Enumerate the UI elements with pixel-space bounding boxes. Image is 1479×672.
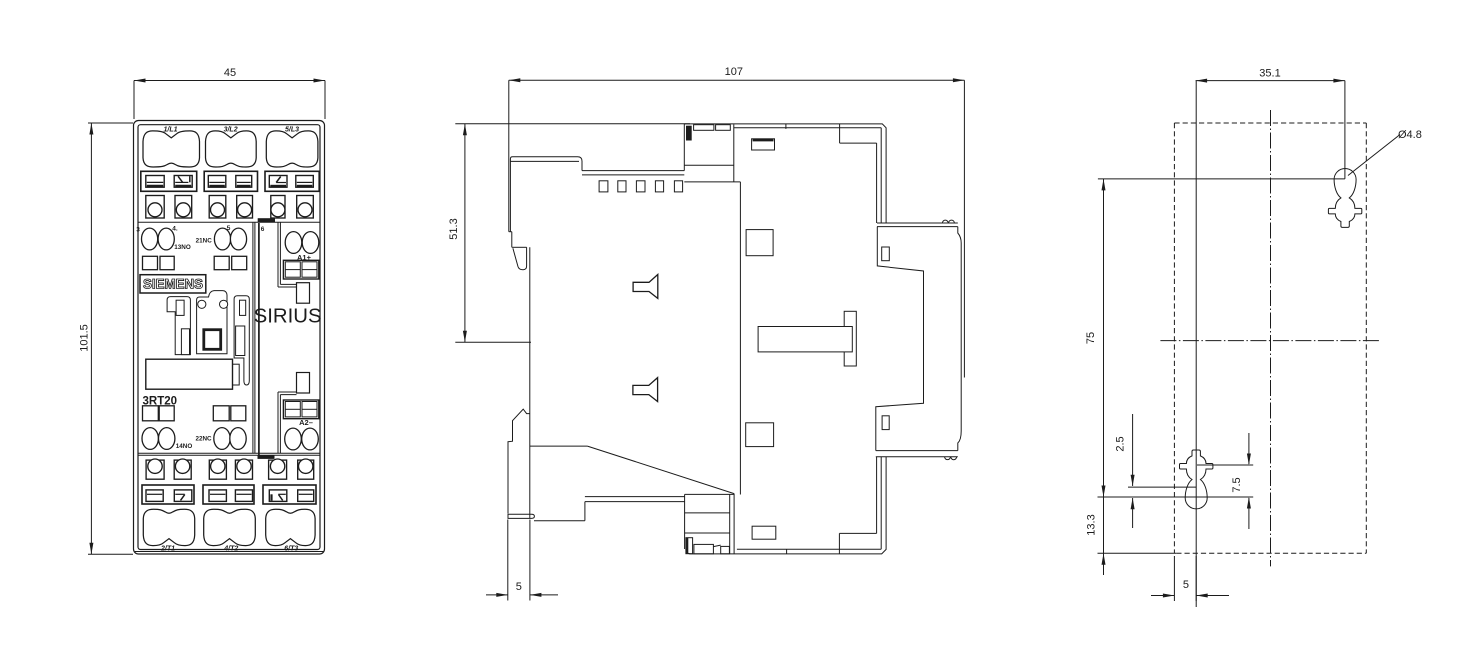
svg-text:4.: 4. [172,226,178,233]
svg-text:A2–: A2– [299,418,313,427]
svg-text:SIRIUS: SIRIUS [254,305,322,327]
svg-text:1/L1: 1/L1 [163,127,177,134]
svg-text:7.5: 7.5 [1231,477,1243,492]
svg-text:SIEMENS: SIEMENS [143,277,203,292]
svg-text:13NO: 13NO [174,244,191,251]
svg-text:Ø4.8: Ø4.8 [1398,129,1422,141]
svg-text:6: 6 [261,226,265,233]
svg-text:51.3: 51.3 [448,218,460,239]
svg-text:5: 5 [516,581,522,593]
svg-text:75: 75 [1085,332,1097,344]
svg-text:6/T3: 6/T3 [284,546,298,553]
svg-text:101.5: 101.5 [79,324,91,352]
svg-text:5/L3: 5/L3 [285,127,299,134]
svg-text:2/T1: 2/T1 [160,546,175,553]
svg-text:21NC: 21NC [196,237,213,244]
svg-text:45: 45 [224,67,236,79]
svg-text:107: 107 [725,66,743,78]
svg-text:35.1: 35.1 [1259,68,1280,80]
svg-text:5: 5 [1183,579,1189,591]
svg-text:3/L2: 3/L2 [224,127,238,134]
svg-text:2.5: 2.5 [1115,436,1127,451]
svg-text:22NC: 22NC [195,436,212,443]
svg-text:4/T2: 4/T2 [223,546,238,553]
svg-text:3: 3 [136,227,140,234]
svg-text:13.3: 13.3 [1086,514,1098,535]
svg-text:14NO: 14NO [176,443,193,450]
